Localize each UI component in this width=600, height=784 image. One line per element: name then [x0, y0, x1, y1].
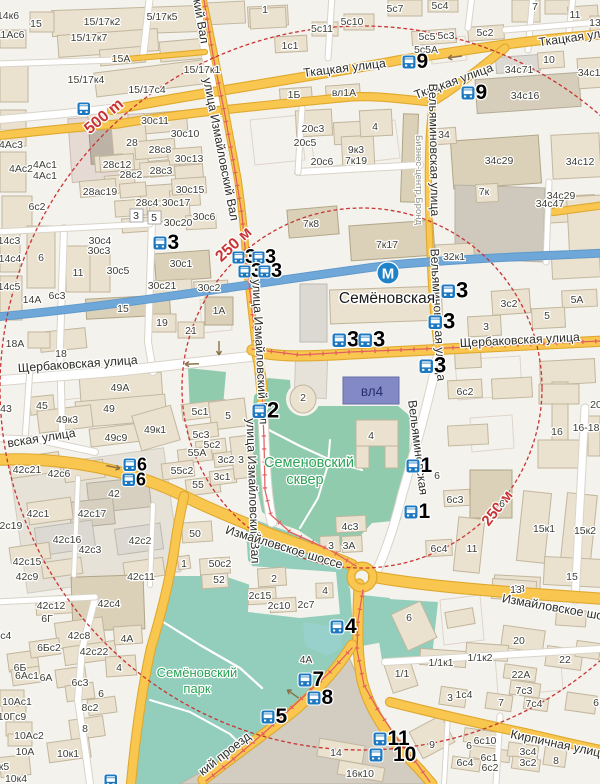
- svg-text:42с8: 42с8: [68, 630, 91, 642]
- svg-text:6: 6: [98, 688, 104, 700]
- svg-text:Семёновская: Семёновская: [339, 290, 435, 307]
- svg-text:30с3: 30с3: [88, 245, 111, 257]
- svg-text:14: 14: [330, 747, 342, 759]
- svg-text:3: 3: [373, 327, 385, 352]
- svg-text:6Бс2: 6Бс2: [37, 642, 61, 654]
- svg-text:2с10: 2с10: [268, 600, 291, 612]
- svg-text:5/17к5: 5/17к5: [147, 11, 178, 23]
- svg-text:30с2: 30с2: [198, 282, 221, 294]
- svg-text:вл4: вл4: [361, 384, 384, 399]
- svg-text:8с2: 8с2: [82, 702, 99, 714]
- svg-text:1А: 1А: [213, 305, 226, 317]
- svg-text:3А: 3А: [343, 540, 356, 552]
- svg-text:30с11: 30с11: [141, 115, 169, 127]
- svg-text:14с5: 14с5: [0, 281, 21, 293]
- svg-text:11Ас6: 11Ас6: [0, 29, 25, 41]
- svg-text:42с6: 42с6: [48, 468, 71, 480]
- svg-text:2: 2: [267, 398, 279, 423]
- svg-text:42с1: 42с1: [27, 508, 50, 520]
- svg-text:6с2: 6с2: [482, 762, 499, 774]
- svg-text:11: 11: [467, 543, 478, 555]
- svg-text:7с4: 7с4: [526, 698, 543, 710]
- svg-text:6Г: 6Г: [41, 613, 53, 625]
- svg-text:49А: 49А: [111, 382, 130, 394]
- svg-text:30с15: 30с15: [176, 184, 205, 196]
- svg-text:22А: 22А: [512, 669, 531, 681]
- svg-text:42с22: 42с22: [80, 646, 109, 658]
- svg-text:вл1А: вл1А: [332, 87, 356, 99]
- svg-text:1: 1: [421, 454, 433, 477]
- svg-text:34с16: 34с16: [511, 90, 540, 102]
- svg-text:6: 6: [434, 470, 440, 482]
- svg-text:7: 7: [532, 1, 538, 13]
- svg-text:42с17: 42с17: [78, 508, 107, 520]
- svg-text:14А: 14А: [23, 294, 42, 306]
- svg-text:42с15: 42с15: [13, 556, 42, 568]
- svg-text:28с2: 28с2: [120, 169, 143, 181]
- svg-text:сквер: сквер: [286, 472, 323, 488]
- svg-text:11: 11: [73, 267, 84, 279]
- svg-text:22: 22: [559, 654, 571, 666]
- svg-text:28: 28: [126, 137, 138, 149]
- svg-text:6: 6: [499, 498, 505, 510]
- svg-text:М: М: [382, 266, 395, 283]
- svg-text:14с4: 14с4: [0, 253, 22, 265]
- svg-text:20с6: 20с6: [311, 156, 334, 168]
- svg-text:3: 3: [238, 454, 244, 466]
- svg-text:5с11: 5с11: [311, 23, 333, 35]
- svg-text:15/17к4: 15/17к4: [68, 74, 105, 86]
- svg-text:6с2: 6с2: [457, 386, 474, 398]
- svg-text:4Ас2: 4Ас2: [9, 163, 33, 175]
- svg-text:4: 4: [368, 430, 374, 442]
- svg-text:2: 2: [271, 573, 277, 585]
- svg-text:5с5: 5с5: [419, 31, 436, 43]
- svg-text:7с3: 7с3: [516, 685, 533, 697]
- svg-text:5с2: 5с2: [477, 27, 494, 39]
- svg-text:1/1к2: 1/1к2: [467, 652, 492, 664]
- svg-text:6: 6: [38, 252, 44, 264]
- svg-text:4: 4: [116, 662, 122, 674]
- svg-text:9: 9: [417, 50, 429, 73]
- svg-text:6: 6: [136, 470, 146, 490]
- svg-text:10Ас1: 10Ас1: [2, 696, 32, 708]
- svg-text:42с12: 42с12: [37, 600, 66, 612]
- svg-text:34с47: 34с47: [536, 198, 565, 210]
- svg-text:3: 3: [168, 231, 180, 254]
- svg-text:28ас19: 28ас19: [83, 186, 118, 198]
- svg-text:5с7: 5с7: [387, 3, 404, 15]
- svg-text:5: 5: [544, 310, 550, 322]
- svg-text:8: 8: [82, 723, 88, 735]
- svg-text:32к1: 32к1: [443, 251, 465, 263]
- svg-text:42с11: 42с11: [127, 571, 155, 583]
- svg-text:42с3: 42с3: [79, 544, 102, 556]
- svg-text:42с21: 42с21: [13, 464, 42, 476]
- svg-text:1: 1: [419, 500, 431, 523]
- svg-text:5: 5: [151, 212, 157, 224]
- svg-text:16к10: 16к10: [346, 768, 374, 780]
- svg-text:4: 4: [372, 121, 378, 133]
- svg-text:30с20: 30с20: [164, 217, 193, 229]
- svg-text:30с13: 30с13: [175, 153, 204, 165]
- svg-text:16: 16: [551, 426, 563, 438]
- svg-text:1/1к1: 1/1к1: [428, 657, 453, 669]
- svg-text:42: 42: [108, 488, 120, 500]
- svg-text:10Ас2: 10Ас2: [14, 730, 44, 742]
- svg-text:20с3: 20с3: [302, 123, 325, 135]
- svg-text:5: 5: [225, 410, 231, 422]
- svg-text:30с5: 30с5: [107, 265, 130, 277]
- svg-text:6с4: 6с4: [457, 757, 474, 769]
- svg-text:Вельяминовская улица: Вельяминовская улица: [426, 83, 442, 216]
- svg-text:6с4: 6с4: [431, 543, 448, 555]
- svg-text:1: 1: [262, 4, 268, 16]
- svg-text:7: 7: [498, 697, 504, 709]
- svg-text:20: 20: [590, 399, 600, 411]
- svg-text:3: 3: [328, 540, 334, 552]
- svg-text:парк: парк: [183, 681, 210, 696]
- svg-text:3с2: 3с2: [501, 298, 518, 310]
- svg-text:2с7: 2с7: [298, 599, 315, 611]
- svg-text:15: 15: [566, 571, 578, 583]
- svg-text:6с3: 6с3: [49, 290, 66, 302]
- svg-text:15/17к7: 15/17к7: [71, 32, 108, 44]
- svg-text:4А: 4А: [121, 633, 134, 645]
- svg-text:8: 8: [553, 755, 559, 767]
- svg-text:28с3: 28с3: [150, 165, 173, 177]
- svg-text:42с19: 42с19: [0, 520, 22, 532]
- svg-text:6: 6: [406, 612, 412, 624]
- svg-text:42с4: 42с4: [98, 598, 121, 610]
- svg-text:14с3: 14с3: [0, 235, 21, 247]
- svg-text:18А: 18А: [6, 338, 25, 350]
- svg-text:4с3: 4с3: [342, 521, 359, 533]
- svg-text:49к1: 49к1: [144, 424, 166, 436]
- svg-text:11: 11: [570, 9, 581, 21]
- svg-text:6А: 6А: [40, 672, 53, 684]
- svg-text:6с2: 6с2: [29, 201, 46, 213]
- svg-text:4А: 4А: [300, 654, 313, 666]
- svg-text:5с2: 5с2: [204, 439, 221, 451]
- svg-text:3: 3: [447, 692, 453, 704]
- svg-text:7к: 7к: [479, 186, 490, 198]
- svg-text:6Ас1: 6Ас1: [15, 670, 39, 682]
- svg-text:30с1: 30с1: [170, 258, 193, 270]
- svg-text:3с2: 3с2: [520, 757, 537, 769]
- svg-text:5с3: 5с3: [438, 30, 455, 42]
- svg-text:20: 20: [513, 635, 525, 647]
- svg-text:3: 3: [483, 321, 489, 333]
- svg-text:5с4: 5с4: [432, 0, 449, 12]
- svg-text:4Ас3: 4Ас3: [0, 139, 23, 151]
- svg-text:3: 3: [434, 353, 446, 378]
- svg-text:10: 10: [393, 743, 416, 766]
- svg-text:1Б: 1Б: [288, 89, 301, 101]
- svg-text:3: 3: [456, 278, 468, 303]
- svg-text:49к3: 49к3: [56, 414, 78, 426]
- svg-text:Гс4: Гс4: [0, 630, 12, 642]
- svg-text:4Ас1: 4Ас1: [33, 170, 57, 182]
- svg-text:34с29: 34с29: [485, 155, 514, 167]
- svg-text:34с71: 34с71: [505, 64, 534, 76]
- svg-text:20с5: 20с5: [294, 137, 317, 149]
- svg-text:14к6: 14к6: [0, 10, 19, 22]
- svg-text:19: 19: [156, 317, 168, 329]
- svg-text:3с1: 3с1: [214, 471, 231, 483]
- svg-text:55с2: 55с2: [171, 465, 194, 477]
- svg-text:10Гс9: 10Гс9: [0, 711, 26, 723]
- svg-text:10: 10: [543, 54, 555, 66]
- svg-text:7к8: 7к8: [303, 218, 319, 230]
- svg-text:15/17к2: 15/17к2: [84, 16, 121, 28]
- svg-text:9: 9: [429, 739, 435, 751]
- svg-text:50с2: 50с2: [209, 558, 232, 570]
- svg-text:45: 45: [36, 400, 48, 412]
- svg-text:30с6: 30с6: [193, 211, 216, 223]
- svg-text:1/1: 1/1: [395, 668, 410, 680]
- svg-text:10к4: 10к4: [5, 773, 27, 784]
- svg-text:3: 3: [133, 210, 139, 222]
- svg-text:3: 3: [271, 260, 282, 282]
- svg-text:42с9: 42с9: [16, 571, 39, 583]
- svg-text:1: 1: [181, 558, 187, 570]
- svg-text:9: 9: [476, 81, 488, 104]
- svg-text:15: 15: [117, 303, 129, 315]
- svg-text:42с16: 42с16: [53, 534, 82, 546]
- svg-text:28с8: 28с8: [149, 144, 172, 156]
- svg-text:6с3: 6с3: [447, 494, 464, 506]
- svg-text:55: 55: [192, 479, 204, 491]
- svg-text:50: 50: [189, 528, 201, 540]
- svg-text:5с10: 5с10: [341, 16, 364, 28]
- svg-text:49: 49: [103, 403, 115, 415]
- svg-text:16-18: 16-18: [573, 422, 600, 434]
- svg-text:43: 43: [0, 403, 12, 415]
- svg-text:34с12: 34с12: [566, 156, 595, 168]
- svg-text:15к1: 15к1: [533, 523, 555, 535]
- svg-text:1с1: 1с1: [282, 40, 299, 52]
- svg-text:30с21: 30с21: [148, 280, 177, 292]
- svg-text:Бизнес-центр Бронд: Бизнес-центр Бронд: [413, 135, 424, 226]
- svg-text:к5: к5: [0, 761, 9, 773]
- svg-text:30с10: 30с10: [171, 128, 200, 140]
- svg-text:8: 8: [322, 686, 334, 709]
- svg-text:2: 2: [300, 392, 306, 404]
- svg-text:7к17: 7к17: [376, 239, 398, 251]
- svg-text:52: 52: [213, 574, 225, 586]
- svg-text:10А: 10А: [16, 746, 35, 758]
- svg-text:49с9: 49с9: [105, 432, 128, 444]
- svg-text:4: 4: [345, 615, 357, 638]
- svg-text:4: 4: [322, 585, 328, 597]
- svg-text:6: 6: [466, 740, 472, 752]
- svg-text:15/17с4: 15/17с4: [128, 84, 166, 96]
- svg-text:Семёновский: Семёновский: [157, 665, 238, 680]
- svg-text:3с2: 3с2: [218, 454, 235, 466]
- svg-text:7к19: 7к19: [345, 155, 367, 167]
- svg-text:6с10: 6с10: [474, 735, 497, 747]
- svg-text:3: 3: [443, 309, 455, 334]
- svg-text:15А: 15А: [112, 53, 131, 65]
- svg-text:21: 21: [185, 325, 197, 337]
- svg-text:10к1: 10к1: [57, 748, 79, 760]
- svg-text:Семеновский: Семеновский: [264, 455, 354, 471]
- svg-text:6: 6: [593, 697, 599, 709]
- svg-text:3: 3: [347, 327, 359, 352]
- svg-text:5: 5: [276, 705, 288, 728]
- svg-text:42с2: 42с2: [129, 535, 152, 547]
- svg-text:34с13: 34с13: [578, 67, 600, 79]
- svg-text:15к2: 15к2: [574, 525, 596, 537]
- svg-text:6с3: 6с3: [72, 677, 89, 689]
- svg-text:28с4: 28с4: [136, 197, 159, 209]
- svg-text:15: 15: [30, 18, 42, 30]
- svg-text:1с4: 1с4: [456, 689, 473, 701]
- svg-text:5А: 5А: [571, 294, 584, 306]
- svg-text:15/17к1: 15/17к1: [184, 64, 221, 76]
- svg-text:5с1: 5с1: [192, 406, 209, 418]
- svg-text:30с17: 30с17: [162, 197, 191, 209]
